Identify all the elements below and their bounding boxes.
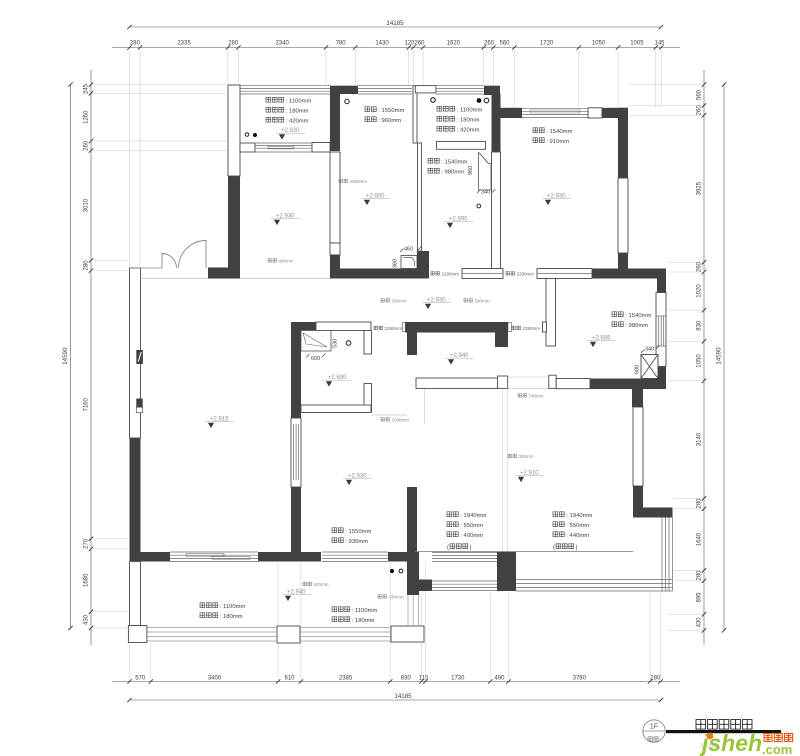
svg-text:245: 245: [84, 83, 90, 94]
svg-text:: 180mm: : 180mm: [457, 118, 480, 124]
svg-text:3010: 3010: [84, 198, 90, 212]
svg-text:110: 110: [419, 675, 429, 681]
svg-text:830: 830: [401, 675, 412, 681]
svg-text:: 420mm: : 420mm: [286, 119, 309, 125]
svg-text:280: 280: [697, 498, 703, 509]
svg-text:1020: 1020: [697, 284, 703, 298]
svg-text:.com: .com: [762, 742, 792, 756]
svg-text:260: 260: [697, 105, 703, 116]
svg-text:: 1940mm: : 1940mm: [460, 513, 486, 519]
svg-text:270: 270: [84, 538, 90, 549]
svg-text:: 400mm: : 400mm: [460, 533, 483, 539]
svg-text:500mm: 500mm: [314, 582, 329, 587]
svg-text:14185: 14185: [386, 20, 404, 27]
svg-text:: 930mm: : 930mm: [345, 539, 368, 545]
svg-text:: 180mm: : 180mm: [220, 614, 243, 620]
svg-text:7160: 7160: [84, 397, 90, 411]
svg-text:280: 280: [130, 41, 141, 47]
svg-text:: 1940mm: : 1940mm: [566, 513, 592, 519]
svg-text:300mm: 300mm: [519, 454, 534, 459]
svg-text:600: 600: [635, 365, 641, 374]
svg-text:560: 560: [697, 89, 703, 100]
svg-text:610: 610: [284, 675, 295, 681]
svg-text:: 980mm: : 980mm: [441, 170, 464, 176]
svg-text:490: 490: [494, 675, 505, 681]
svg-text:14185: 14185: [394, 693, 412, 700]
svg-text:280: 280: [84, 260, 90, 271]
svg-text:1F: 1F: [650, 724, 658, 731]
svg-text:2385: 2385: [339, 675, 353, 681]
svg-text:: 1550mm: : 1550mm: [345, 529, 371, 535]
svg-text:780: 780: [336, 41, 347, 47]
svg-text:3925: 3925: [697, 181, 703, 195]
svg-text:960: 960: [468, 166, 474, 175]
svg-text:: 550mm: : 550mm: [460, 523, 483, 529]
svg-text:3780: 3780: [573, 675, 587, 681]
svg-text:2340: 2340: [276, 41, 290, 47]
svg-text:14590: 14590: [716, 347, 723, 365]
svg-text:490mm: 490mm: [279, 259, 294, 264]
svg-text:: 1100mm: : 1100mm: [286, 99, 312, 105]
svg-text:1430: 1430: [375, 41, 389, 47]
svg-text:: 1100mm: : 1100mm: [220, 604, 246, 610]
svg-text:590mm: 590mm: [475, 299, 490, 304]
svg-text:830: 830: [697, 320, 703, 331]
svg-text:1260: 1260: [84, 110, 90, 124]
svg-text:: 910mm: : 910mm: [546, 139, 569, 145]
svg-text:280: 280: [697, 570, 703, 581]
svg-text:460: 460: [404, 247, 413, 253]
svg-text:260: 260: [414, 41, 425, 47]
svg-text:360: 360: [393, 259, 399, 268]
svg-text:1640: 1640: [697, 532, 703, 546]
svg-text:1680: 1680: [84, 573, 90, 587]
svg-text:: 1100mm: : 1100mm: [457, 108, 483, 114]
svg-text:1730: 1730: [451, 675, 465, 681]
svg-text:260: 260: [484, 41, 495, 47]
svg-text:: 180mm: : 180mm: [352, 618, 375, 624]
svg-text:: 1100mm: : 1100mm: [352, 608, 378, 614]
svg-text:430mm: 430mm: [389, 595, 404, 600]
svg-text:2390mm: 2390mm: [523, 326, 541, 331]
svg-text:(: (: [447, 545, 449, 551]
svg-text:340: 340: [481, 190, 490, 196]
svg-text:(: (: [553, 545, 555, 551]
svg-text:1005: 1005: [630, 41, 644, 47]
svg-text:2090mm: 2090mm: [350, 179, 368, 184]
svg-text:: 440mm: : 440mm: [566, 533, 589, 539]
svg-text:290mm: 290mm: [392, 299, 407, 304]
svg-text:560: 560: [499, 41, 510, 47]
svg-text:600: 600: [311, 356, 320, 362]
svg-text:1050: 1050: [592, 41, 606, 47]
svg-text:2290mm: 2290mm: [442, 272, 460, 277]
svg-text:740mm: 740mm: [529, 394, 544, 399]
svg-text:340: 340: [645, 347, 654, 353]
svg-text:430: 430: [697, 617, 703, 628]
svg-text:2290mm: 2290mm: [385, 326, 403, 331]
svg-text:2335: 2335: [177, 41, 191, 47]
svg-text:3400: 3400: [208, 675, 222, 681]
svg-text:: 980mm: : 980mm: [625, 323, 648, 329]
svg-text:260: 260: [84, 140, 90, 151]
svg-text:2090mm: 2090mm: [392, 418, 410, 423]
svg-text:1620: 1620: [447, 41, 461, 47]
svg-text:1720: 1720: [540, 41, 554, 47]
svg-text:530: 530: [333, 339, 339, 348]
svg-text:: 1540mm: : 1540mm: [625, 313, 651, 319]
svg-text:2290mm: 2290mm: [517, 272, 535, 277]
svg-text:895: 895: [697, 592, 703, 603]
svg-text:): ): [470, 545, 472, 551]
svg-text:570: 570: [135, 675, 146, 681]
svg-text:3140: 3140: [697, 432, 703, 446]
svg-text:14590: 14590: [62, 347, 69, 365]
svg-text:280: 280: [228, 41, 239, 47]
svg-text:: 960mm: : 960mm: [378, 118, 401, 124]
svg-text:1050: 1050: [697, 354, 703, 368]
svg-text:: 420mm: : 420mm: [457, 128, 480, 134]
svg-text:: 1540mm: : 1540mm: [441, 160, 467, 166]
svg-text:145: 145: [654, 41, 665, 47]
svg-text:): ): [576, 545, 578, 551]
svg-text:430: 430: [84, 614, 90, 625]
svg-text:280: 280: [650, 675, 661, 681]
svg-text:: 550mm: : 550mm: [566, 523, 589, 529]
svg-text:: 1540mm: : 1540mm: [546, 129, 572, 135]
svg-text:260: 260: [697, 261, 703, 272]
svg-text:: 1550mm: : 1550mm: [378, 108, 404, 114]
svg-text:: 180mm: : 180mm: [286, 109, 309, 115]
